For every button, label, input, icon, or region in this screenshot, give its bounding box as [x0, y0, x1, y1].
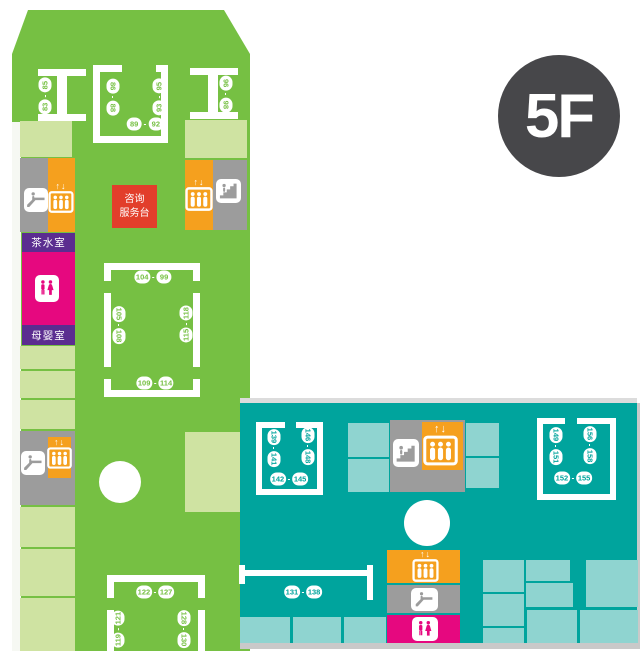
wall-segment — [107, 575, 114, 598]
unit-cell — [527, 610, 577, 643]
shop-range-131-138: 131-138 — [284, 586, 322, 599]
shop-number: 141 — [268, 451, 281, 467]
wall-segment — [93, 65, 100, 143]
info-desk: 咨询 服务台 — [112, 185, 157, 228]
shop-number: 156 — [584, 426, 597, 442]
range-dash: - — [180, 628, 189, 631]
shop-number: 122 — [136, 586, 152, 599]
shop-number: 145 — [292, 473, 308, 486]
wall-segment — [38, 114, 86, 121]
unit-cell — [526, 560, 570, 581]
floor-badge: 5F — [498, 55, 620, 177]
shop-number: 146 — [302, 427, 315, 443]
floor-badge-label: 5F — [525, 81, 593, 152]
shop-range-104-99: 104-99 — [134, 271, 171, 284]
wall-segment — [198, 610, 205, 651]
shop-range-122-127: 122-127 — [136, 586, 174, 599]
shop-range-89-92: 89-92 — [127, 118, 164, 131]
tea-room-label: 茶水室 — [31, 235, 66, 250]
elevator-icon: ↑↓ — [409, 549, 442, 582]
range-dash: - — [288, 475, 291, 484]
shop-number: 148 — [302, 449, 315, 465]
range-dash: - — [304, 445, 313, 448]
shop-number: 155 — [576, 472, 592, 485]
unit-cell — [348, 459, 389, 492]
shop-range-142-145: 142-145 — [270, 473, 308, 486]
shop-number: 158 — [584, 448, 597, 464]
shop-number: 104 — [134, 271, 150, 284]
unit-cell — [526, 583, 573, 607]
range-dash: - — [222, 93, 231, 96]
shop-range-128-130: 128-130 — [178, 610, 191, 648]
info-desk-line2: 服务台 — [120, 207, 150, 221]
atrium-circle — [404, 500, 450, 546]
shop-range-152-155: 152-155 — [554, 472, 592, 485]
wall-segment — [537, 494, 616, 500]
range-dash: - — [154, 588, 157, 597]
shop-number: 114 — [159, 377, 174, 390]
shop-number: 138 — [306, 586, 322, 599]
unit-cell — [293, 617, 341, 643]
wall-segment — [57, 76, 67, 114]
shop-range-156-158: 156-158 — [584, 426, 597, 464]
shop-number: 139 — [268, 429, 281, 445]
unit-cell — [20, 598, 75, 651]
shop-number: 83 — [39, 99, 52, 114]
unit-cell — [20, 549, 75, 596]
range-dash: - — [182, 323, 191, 326]
shop-range-119-121: 119-121 — [112, 610, 125, 647]
unit-cell — [20, 507, 75, 547]
unit-cell — [483, 628, 524, 643]
shop-number: 152 — [554, 472, 570, 485]
shop-range-109-114: 109-114 — [136, 377, 173, 390]
range-dash: - — [152, 273, 155, 282]
stairs-icon — [216, 179, 241, 203]
shop-number: 96 — [220, 76, 233, 91]
wall-segment — [367, 565, 373, 600]
wall-segment — [193, 293, 200, 367]
shop-number: 89 — [127, 118, 142, 131]
teal-zone-bottom-shadow — [240, 643, 640, 649]
shop-number: 105 — [113, 306, 126, 322]
nursing-room-label: 母婴室 — [31, 328, 66, 343]
shop-number: 85 — [39, 78, 52, 93]
wall-segment — [193, 263, 200, 281]
elevator-icon: ↑↓ — [47, 181, 75, 213]
stairs-icon — [393, 439, 419, 467]
range-dash: - — [270, 447, 279, 450]
shop-number: 130 — [178, 632, 191, 648]
wall-segment — [190, 68, 238, 75]
tea-room: 茶水室 — [22, 233, 75, 252]
info-desk-line1: 咨询 — [125, 193, 145, 207]
shop-number: 128 — [178, 610, 191, 626]
shop-range-105-108: 105-108 — [113, 306, 126, 344]
range-dash: - — [41, 95, 50, 98]
elevator-arrows: ↑↓ — [420, 549, 431, 559]
wall-segment — [38, 69, 86, 76]
unit-cell — [20, 346, 75, 369]
unit-cell — [466, 458, 499, 488]
unit-cell — [466, 423, 499, 456]
wall-segment — [243, 570, 373, 576]
escalator-icon — [24, 188, 48, 212]
shop-range-146-148: 146-148 — [302, 427, 315, 465]
shop-number: 118 — [180, 306, 193, 321]
unit-cell — [344, 617, 386, 643]
wall-segment — [104, 293, 111, 367]
range-dash: - — [115, 324, 124, 327]
wall-segment — [537, 418, 543, 500]
shop-number: 98 — [220, 97, 233, 112]
shop-range-86-88: 86-88 — [107, 79, 120, 116]
wall-segment — [107, 575, 205, 582]
shop-number: 151 — [550, 449, 563, 465]
shop-range-83-85: 83-85 — [39, 78, 52, 115]
unit-cell — [483, 594, 524, 626]
shop-range-149-151: 149-151 — [550, 427, 563, 465]
shop-number: 99 — [157, 271, 172, 284]
wall-segment — [256, 489, 323, 495]
unit-cell — [185, 432, 240, 512]
elevator-arrows: ↑↓ — [194, 177, 205, 187]
wall-segment — [190, 112, 238, 119]
range-dash: - — [552, 445, 561, 448]
shop-range-115-118: 115-118 — [180, 306, 193, 343]
unit-cell — [348, 423, 389, 457]
shop-number: 92 — [148, 118, 163, 131]
elevator-icon: ↑↓ — [47, 437, 72, 469]
wall-segment — [208, 75, 218, 112]
shop-number: 86 — [107, 79, 120, 94]
unit-cell — [20, 121, 72, 157]
range-dash: - — [154, 379, 157, 388]
restroom-icon — [35, 275, 59, 302]
wall-segment — [104, 263, 111, 281]
wall-segment — [256, 422, 262, 495]
elevator-arrows: ↑↓ — [56, 181, 67, 191]
shop-number: 109 — [136, 377, 152, 390]
unit-cell — [20, 400, 75, 429]
unit-cell — [185, 120, 247, 158]
range-dash: - — [586, 444, 595, 447]
wall-segment — [239, 565, 245, 584]
elevator-arrows: ↑↓ — [54, 437, 65, 447]
shop-number: 149 — [550, 427, 563, 443]
nursing-room: 母婴室 — [22, 325, 75, 345]
elevator-icon: ↑↓ — [185, 177, 213, 211]
shop-number: 121 — [112, 610, 125, 626]
shop-number: 119 — [112, 633, 125, 648]
floor-plan-5f: 茶水室 母婴室 咨询 服务台 — [0, 0, 640, 651]
wall-segment — [104, 390, 200, 397]
shop-range-93-95: 93-95 — [153, 79, 166, 116]
range-dash: - — [302, 588, 305, 597]
shop-number: 93 — [153, 100, 166, 115]
shop-range-96-98: 96-98 — [220, 76, 233, 113]
shop-number: 88 — [107, 100, 120, 115]
restroom-icon — [412, 617, 438, 641]
atrium-circle — [99, 461, 141, 503]
shop-range-139-141: 139-141 — [268, 429, 281, 467]
wall-segment — [104, 379, 111, 397]
range-dash: - — [155, 96, 164, 99]
shop-number: 131 — [284, 586, 300, 599]
teal-zone-top-shadow — [240, 398, 637, 403]
range-dash: - — [114, 628, 123, 631]
shop-number: 127 — [158, 586, 174, 599]
shop-number: 95 — [153, 79, 166, 94]
shop-number: 108 — [113, 328, 126, 344]
escalator-icon — [411, 588, 438, 611]
wall-segment — [93, 136, 168, 143]
range-dash: - — [144, 120, 147, 129]
elevator-arrows: ↑↓ — [434, 423, 447, 435]
unit-cell — [580, 610, 638, 643]
unit-cell — [240, 617, 290, 643]
range-dash: - — [109, 96, 118, 99]
wall-segment — [610, 418, 616, 500]
wall-segment — [317, 422, 323, 495]
unit-cell — [483, 560, 524, 592]
wall-segment — [193, 379, 200, 397]
shop-number: 115 — [180, 327, 193, 342]
unit-cell — [20, 371, 75, 398]
range-dash: - — [572, 474, 575, 483]
escalator-icon — [21, 451, 45, 475]
unit-cell — [586, 560, 638, 607]
shop-number: 142 — [270, 473, 286, 486]
elevator-icon: ↑↓ — [423, 423, 458, 466]
wall-segment — [198, 575, 205, 598]
wall-segment — [104, 263, 200, 270]
